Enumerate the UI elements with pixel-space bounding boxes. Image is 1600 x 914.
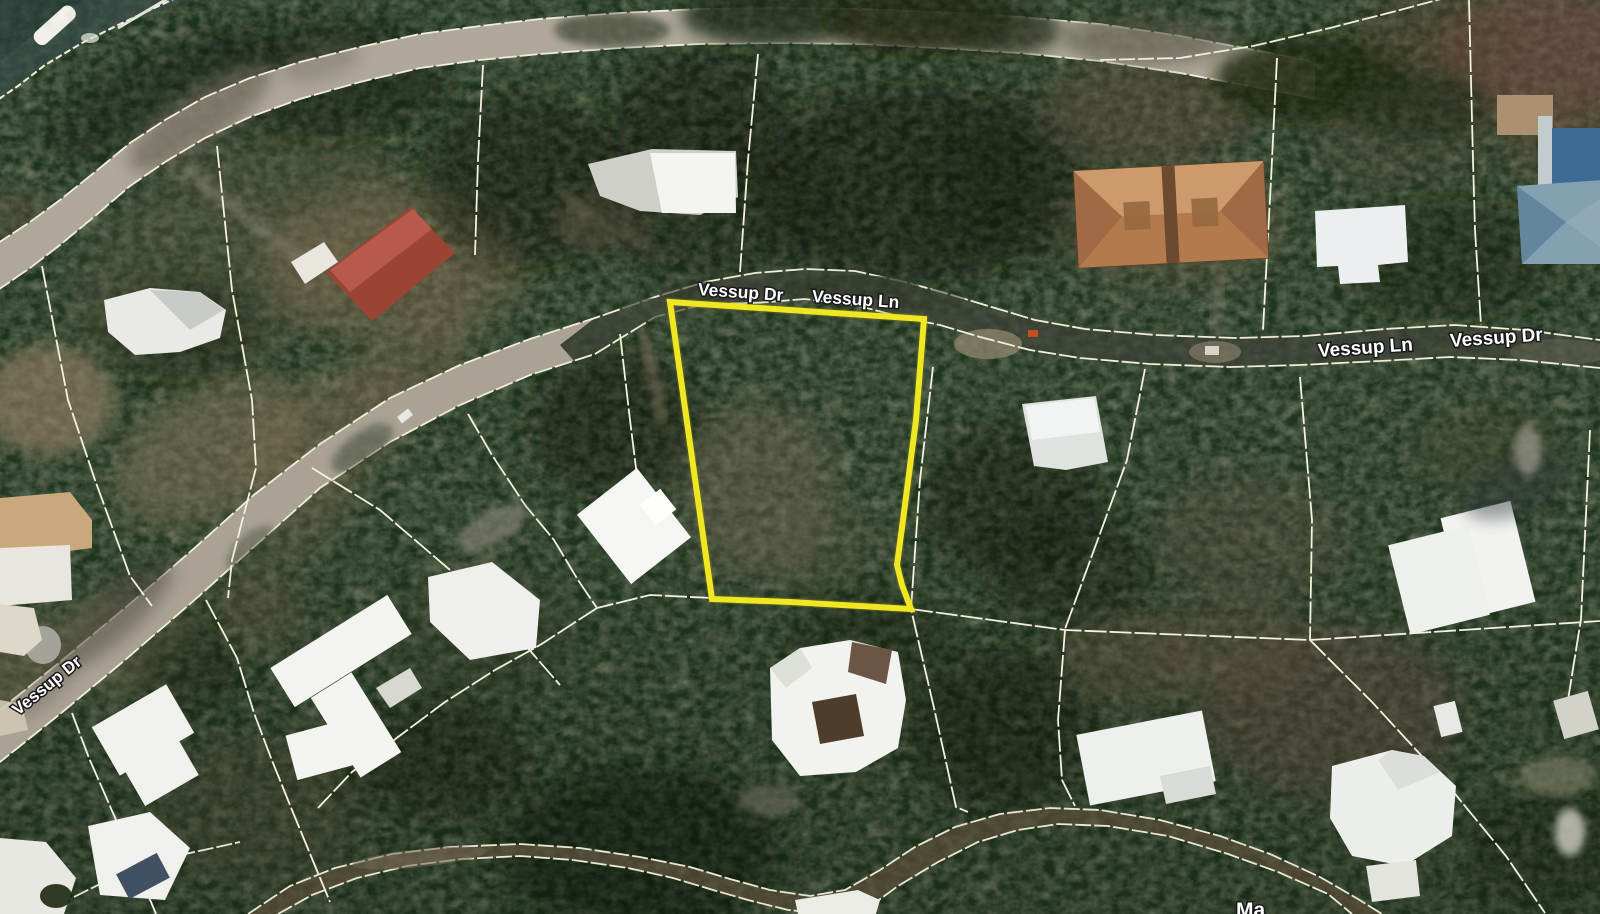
svg-text:Ma: Ma [1236,899,1265,914]
